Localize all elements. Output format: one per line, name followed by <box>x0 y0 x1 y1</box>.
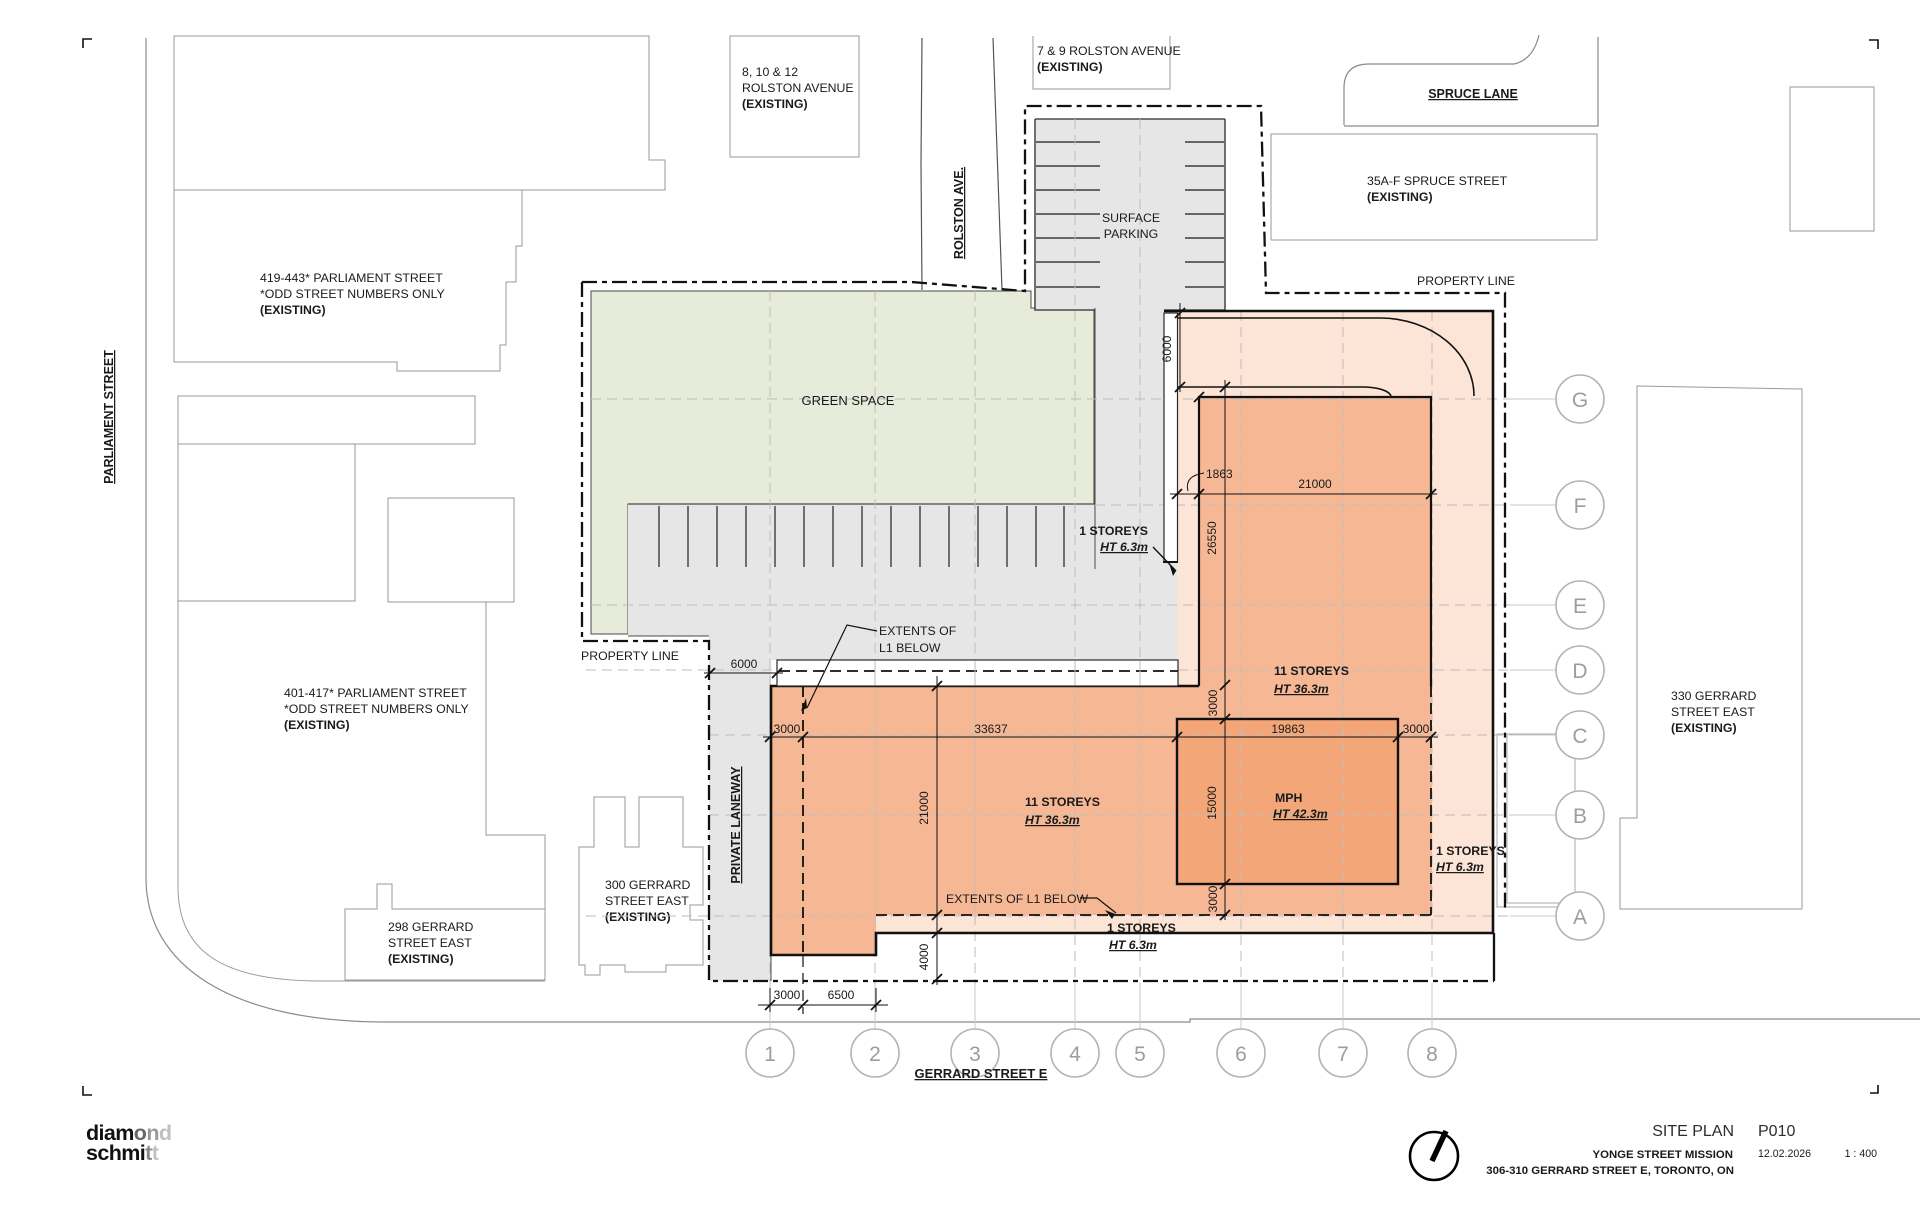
svg-text:3000: 3000 <box>1206 885 1220 912</box>
svg-text:4000: 4000 <box>917 943 931 970</box>
svg-text:4: 4 <box>1069 1043 1081 1066</box>
svg-text:PARKING: PARKING <box>1104 227 1158 241</box>
svg-text:EXTENTS OF: EXTENTS OF <box>879 624 957 638</box>
svg-text:F: F <box>1574 495 1587 518</box>
svg-text:HT 6.3m: HT 6.3m <box>1436 860 1484 874</box>
svg-text:D: D <box>1572 660 1587 683</box>
svg-text:21000: 21000 <box>1298 477 1332 491</box>
svg-text:1 STOREYS: 1 STOREYS <box>1107 921 1176 935</box>
svg-text:3000: 3000 <box>774 988 801 1002</box>
svg-text:HT 42.3m: HT 42.3m <box>1273 807 1328 821</box>
svg-text:*ODD STREET NUMBERS ONLY: *ODD STREET NUMBERS ONLY <box>260 287 445 301</box>
svg-text:HT 36.3m: HT 36.3m <box>1025 813 1080 827</box>
svg-text:1: 1 <box>764 1043 776 1066</box>
svg-text:306-310 GERRARD STREET E, TORO: 306-310 GERRARD STREET E, TORONTO, ON <box>1486 1165 1734 1177</box>
svg-text:SPRUCE LANE: SPRUCE LANE <box>1428 87 1518 101</box>
svg-text:3000: 3000 <box>774 722 801 736</box>
svg-text:21000: 21000 <box>917 791 931 825</box>
svg-text:MPH: MPH <box>1275 791 1302 805</box>
svg-text:PROPERTY LINE: PROPERTY LINE <box>581 649 679 663</box>
svg-text:8, 10 & 12: 8, 10 & 12 <box>742 65 798 79</box>
svg-text:35A-F SPRUCE STREET: 35A-F SPRUCE STREET <box>1367 174 1508 188</box>
svg-text:HT 6.3m: HT 6.3m <box>1100 540 1148 554</box>
svg-text:8: 8 <box>1426 1043 1438 1066</box>
svg-text:PARLIAMENT STREET: PARLIAMENT STREET <box>102 350 116 484</box>
svg-text:6500: 6500 <box>828 988 855 1002</box>
svg-text:G: G <box>1572 389 1588 412</box>
svg-text:(EXISTING): (EXISTING) <box>284 718 350 732</box>
svg-text:HT 36.3m: HT 36.3m <box>1274 682 1329 696</box>
svg-text:L1 BELOW: L1 BELOW <box>879 641 941 655</box>
svg-text:7 & 9 ROLSTON AVENUE: 7 & 9 ROLSTON AVENUE <box>1037 44 1181 58</box>
svg-text:*ODD STREET NUMBERS ONLY: *ODD STREET NUMBERS ONLY <box>284 702 469 716</box>
svg-text:11 STOREYS: 11 STOREYS <box>1274 664 1349 678</box>
svg-text:3: 3 <box>969 1043 981 1066</box>
svg-text:SITE PLAN: SITE PLAN <box>1652 1123 1734 1140</box>
svg-text:SURFACE: SURFACE <box>1102 211 1160 225</box>
svg-text:EXTENTS OF L1 BELOW: EXTENTS OF L1 BELOW <box>946 892 1089 906</box>
svg-text:11 STOREYS: 11 STOREYS <box>1025 795 1100 809</box>
svg-text:298 GERRARD: 298 GERRARD <box>388 920 474 934</box>
svg-text:B: B <box>1573 805 1587 828</box>
svg-text:schmitt: schmitt <box>86 1141 159 1165</box>
svg-text:ROLSTON AVE.: ROLSTON AVE. <box>952 167 966 259</box>
svg-text:YONGE STREET MISSION: YONGE STREET MISSION <box>1592 1149 1733 1161</box>
svg-text:401-417* PARLIAMENT STREET: 401-417* PARLIAMENT STREET <box>284 686 467 700</box>
svg-text:419-443* PARLIAMENT STREET: 419-443* PARLIAMENT STREET <box>260 271 443 285</box>
svg-text:A: A <box>1573 906 1587 929</box>
svg-text:6: 6 <box>1235 1043 1247 1066</box>
svg-text:STREET EAST: STREET EAST <box>1671 705 1755 719</box>
svg-text:(EXISTING): (EXISTING) <box>1671 721 1737 735</box>
svg-text:1 STOREYS: 1 STOREYS <box>1079 524 1148 538</box>
svg-text:(EXISTING): (EXISTING) <box>1037 60 1103 74</box>
svg-text:7: 7 <box>1337 1043 1349 1066</box>
svg-text:15000: 15000 <box>1205 786 1219 820</box>
svg-text:C: C <box>1572 725 1587 748</box>
svg-text:330 GERRARD: 330 GERRARD <box>1671 689 1757 703</box>
svg-text:ROLSTON AVENUE: ROLSTON AVENUE <box>742 81 854 95</box>
svg-text:5: 5 <box>1134 1043 1146 1066</box>
svg-text:19863: 19863 <box>1271 722 1305 736</box>
svg-text:STREET EAST: STREET EAST <box>605 894 689 908</box>
svg-text:3000: 3000 <box>1403 722 1430 736</box>
svg-text:2: 2 <box>869 1043 881 1066</box>
svg-text:1863: 1863 <box>1206 467 1233 481</box>
svg-text:(EXISTING): (EXISTING) <box>260 303 326 317</box>
svg-text:12.02.2026: 12.02.2026 <box>1758 1148 1811 1160</box>
svg-text:PRIVATE LANEWAY: PRIVATE LANEWAY <box>729 766 743 884</box>
svg-text:1 STOREYS: 1 STOREYS <box>1436 844 1505 858</box>
svg-text:1 : 400: 1 : 400 <box>1845 1148 1878 1160</box>
svg-text:HT 6.3m: HT 6.3m <box>1109 938 1157 952</box>
svg-text:3000: 3000 <box>1206 689 1220 716</box>
svg-text:GERRARD STREET E: GERRARD STREET E <box>915 1066 1048 1081</box>
svg-text:(EXISTING): (EXISTING) <box>742 97 808 111</box>
svg-text:300 GERRARD: 300 GERRARD <box>605 878 691 892</box>
svg-text:33637: 33637 <box>974 722 1008 736</box>
svg-text:26550: 26550 <box>1205 521 1219 555</box>
svg-text:GREEN SPACE: GREEN SPACE <box>802 393 895 408</box>
svg-text:PROPERTY LINE: PROPERTY LINE <box>1417 274 1515 288</box>
svg-text:E: E <box>1573 595 1587 618</box>
svg-text:(EXISTING): (EXISTING) <box>388 952 454 966</box>
svg-text:(EXISTING): (EXISTING) <box>605 910 671 924</box>
svg-text:6000: 6000 <box>1160 335 1174 362</box>
svg-text:P010: P010 <box>1758 1123 1795 1140</box>
svg-text:STREET EAST: STREET EAST <box>388 936 472 950</box>
svg-text:6000: 6000 <box>731 657 758 671</box>
svg-text:(EXISTING): (EXISTING) <box>1367 190 1433 204</box>
